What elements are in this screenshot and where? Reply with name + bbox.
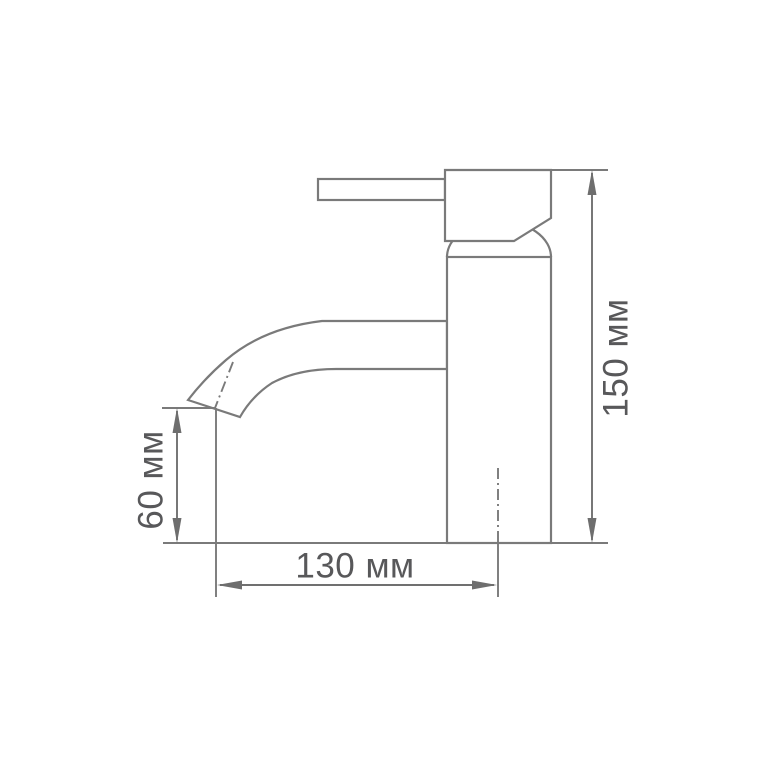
spout-height-label: 60 мм [132,430,171,529]
dimension-spout-height: 60 мм [132,408,182,543]
dimension-spout-reach: 130 мм [217,547,497,590]
faucet-dimension-drawing: 150 мм 60 мм 130 мм [0,0,768,768]
dimension-total-height: 150 мм [588,170,636,543]
faucet-spout [188,321,447,417]
spout-reach-label: 130 мм [295,547,414,586]
arrow-up-icon [588,170,597,195]
faucet-outline [188,170,551,543]
faucet-handle-lever [318,179,445,200]
arrow-down-icon [588,518,597,543]
arrow-up-icon [173,408,182,433]
arrow-left-icon [217,581,242,590]
faucet-body [447,257,551,543]
total-height-label: 150 мм [597,298,636,417]
dimension-drawing-page: 150 мм 60 мм 130 мм [0,0,768,768]
arrow-right-icon [472,581,497,590]
arrow-down-icon [173,518,182,543]
